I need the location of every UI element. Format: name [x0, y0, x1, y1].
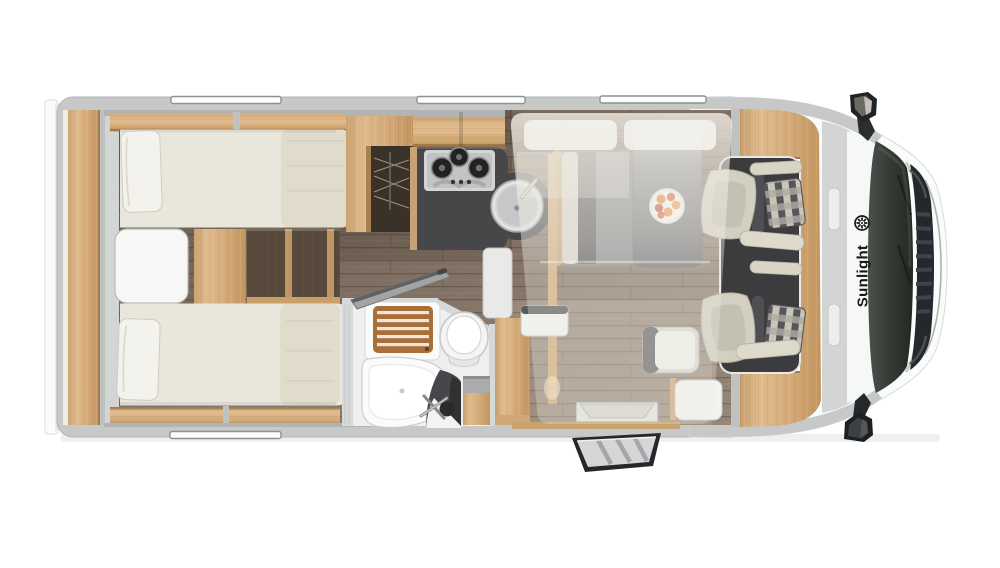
- svg-text:Sunlight: Sunlight: [855, 245, 872, 307]
